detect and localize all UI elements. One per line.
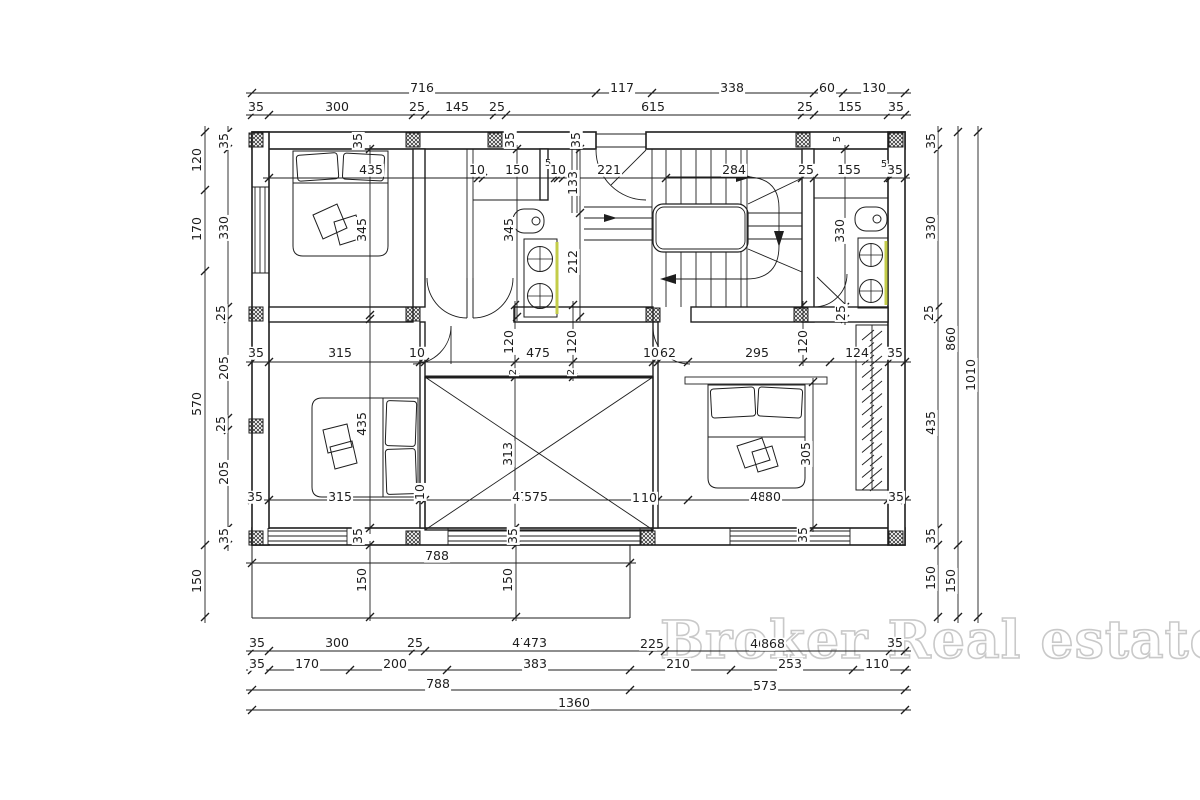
dim-label: 150	[502, 567, 515, 593]
dim-label: 25	[797, 164, 815, 177]
dim-label: 435	[356, 411, 369, 437]
dim-label: 345	[356, 217, 369, 243]
dim-label: 315	[327, 347, 353, 360]
dim-label: 300	[324, 101, 350, 114]
dim-label: 170	[294, 658, 320, 671]
dim-label: 35	[887, 101, 905, 114]
dim-label: 25	[406, 637, 424, 650]
dim-label: 330	[218, 215, 231, 241]
dim-label: 35	[248, 658, 266, 671]
dim-label: 10	[414, 483, 427, 501]
dim-label: 10	[642, 347, 660, 360]
dim-label: 475	[525, 347, 551, 360]
dim-label: 313	[502, 441, 515, 467]
dim-label: 10	[468, 164, 486, 177]
dim-label: 473	[522, 637, 548, 650]
dim-label: 170	[191, 216, 204, 242]
dim-label: 716	[409, 82, 435, 95]
dim-label: 205	[218, 355, 231, 381]
dim-label: 300	[324, 637, 350, 650]
dim-label: 117	[609, 82, 635, 95]
dim-label: 124	[844, 347, 870, 360]
dim-label: 330	[834, 218, 847, 244]
dim-label: 35	[247, 347, 265, 360]
dim-label: 10	[640, 492, 658, 505]
dim-label: 35	[218, 132, 231, 150]
dim-label: 305	[800, 441, 813, 467]
dim-label: 338	[719, 82, 745, 95]
dim-label: 200	[382, 658, 408, 671]
dim-label: 25	[796, 101, 814, 114]
dim-label: 150	[945, 568, 958, 594]
dim-label: 35	[504, 131, 517, 149]
dim-label: 150	[504, 164, 530, 177]
dim-label: 145	[444, 101, 470, 114]
dim-label: 155	[837, 101, 863, 114]
dim-label: 860	[945, 326, 958, 352]
dim-label: 435	[925, 410, 938, 436]
dim-label: 120	[566, 329, 579, 355]
dim-label: 210	[665, 658, 691, 671]
dim-label: 35	[886, 164, 904, 177]
dim-label: 35	[218, 527, 231, 545]
floor-plan-canvas: Broker Real estate	[0, 0, 1200, 800]
dim-label: 35	[247, 101, 265, 114]
dim-label: 315	[327, 491, 353, 504]
dim-label: 110	[864, 658, 890, 671]
dim-label: 130	[861, 82, 887, 95]
dim-label: 35	[886, 347, 904, 360]
dim-label: 155	[836, 164, 862, 177]
dim-label: 2	[509, 368, 519, 376]
dim-label: 80	[764, 491, 782, 504]
dim-label: 573	[752, 680, 778, 693]
dim-label: 25	[215, 304, 228, 322]
dim-label: 868	[760, 638, 786, 651]
dim-label: 35	[246, 491, 264, 504]
dim-label: 62	[659, 347, 677, 360]
dim-label: 133	[567, 170, 580, 196]
dimension-labels-layer: 7161173386013035300251452561525155354351…	[0, 0, 1200, 800]
dim-label: 788	[424, 550, 450, 563]
dim-label: 25	[488, 101, 506, 114]
dim-label: 35	[352, 527, 365, 545]
dim-label: 35	[886, 637, 904, 650]
dim-label: 25	[215, 415, 228, 433]
dim-label: 570	[191, 391, 204, 417]
dim-label: 284	[721, 164, 747, 177]
dim-label: 383	[522, 658, 548, 671]
dim-label: 205	[218, 460, 231, 486]
dim-label: 10	[408, 347, 426, 360]
dim-label: 2	[567, 368, 577, 376]
dim-label: 35	[925, 132, 938, 150]
dim-label: 150	[191, 568, 204, 594]
dim-label: 120	[503, 329, 516, 355]
dim-label: 212	[567, 249, 580, 275]
dim-label: 120	[797, 329, 810, 355]
dim-label: 120	[191, 147, 204, 173]
dim-label: 25	[408, 101, 426, 114]
dim-label: 25	[647, 638, 665, 651]
dim-label: 221	[596, 164, 622, 177]
dim-label: 35	[925, 527, 938, 545]
dim-label: 25	[923, 304, 936, 322]
dim-label: 1360	[557, 697, 591, 710]
dim-label: 35	[507, 527, 520, 545]
dim-label: 330	[925, 215, 938, 241]
dim-label: 253	[777, 658, 803, 671]
dim-label: 35	[570, 131, 583, 149]
dim-label: 435	[358, 164, 384, 177]
dim-label: 25	[835, 304, 848, 322]
dim-label: 35	[248, 637, 266, 650]
dim-label: 295	[744, 347, 770, 360]
dim-label: 5	[833, 135, 843, 143]
dim-label: 1010	[965, 358, 978, 392]
dim-label: 788	[425, 678, 451, 691]
dim-label: 35	[797, 526, 810, 544]
dim-label: 345	[503, 217, 516, 243]
dim-label: 150	[356, 567, 369, 593]
dim-label: 615	[640, 101, 666, 114]
dim-label: 35	[887, 491, 905, 504]
dim-label: 150	[925, 565, 938, 591]
dim-label: 60	[818, 82, 836, 95]
dim-label: 35	[352, 132, 365, 150]
dim-label: 575	[523, 491, 549, 504]
